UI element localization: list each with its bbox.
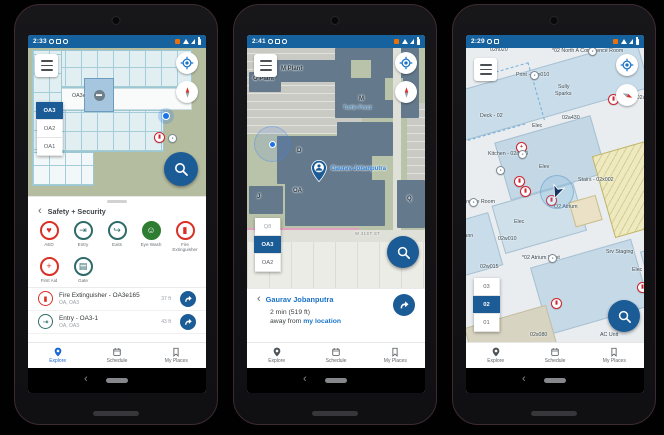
category-label: Entry [66,242,100,247]
status-right-icons [613,39,639,45]
result-icon: ▮ [38,291,53,306]
indoor-map-view[interactable]: ▬ OA3e ▮● OA3OA2OA1 [28,48,206,196]
signal-icon [191,39,195,44]
status-right-icons [394,39,420,45]
away-text: away from my location [270,318,415,325]
poi-marker[interactable]: ● [469,198,478,207]
category-icon: ↪ [108,221,127,240]
status-right-icons [175,39,201,45]
android-back-button[interactable]: ‹ [522,374,526,385]
bottom-navigation: Explore Schedule My Places [466,342,644,368]
floor-option[interactable]: OA2 [255,254,280,272]
poi-marker[interactable]: ● [168,134,177,143]
clock-icon [487,39,492,44]
menu-button[interactable] [474,58,497,81]
notification-icon [175,39,180,44]
bottom-sheet: ‹ Gaurav Jobanputra 2 min (519 ft) away … [247,288,425,342]
phone-3: 2:29 [452,4,656,425]
category-label: AED [32,242,66,247]
tab-explore[interactable]: Explore [28,347,87,364]
category-label: Eye Wash [134,242,168,247]
result-row[interactable]: ▮ Fire Extinguisher - OA3e165 OA, OA3 37… [28,288,206,311]
category-item[interactable]: ☺ Eye Wash [134,221,168,253]
compass-button[interactable] [616,84,638,106]
battery-icon [198,39,202,45]
android-nav-bar: ‹ [28,368,206,393]
category-label: Exits [100,242,134,247]
message-icon [275,39,280,44]
status-bar: 2:29 [466,35,644,48]
tab-my-places[interactable]: My Places [366,347,425,364]
front-camera [331,16,340,25]
category-item[interactable]: ▤ Gate [66,257,100,283]
result-subtitle: OA, OA3 [59,300,155,306]
poi-marker[interactable]: ▮ [637,282,644,293]
person-pin[interactable] [311,160,327,182]
battery-icon [636,39,640,45]
poi-marker[interactable]: ● [518,150,527,159]
floor-option[interactable]: OA1 [37,138,62,156]
bottom-sheet: ‹ Safety + Security ♥ AED ⇥ Entry [28,196,206,342]
clock-icon [268,39,273,44]
tab-schedule[interactable]: Schedule [525,347,584,364]
locate-button[interactable] [176,52,198,74]
poi-marker[interactable]: ▮ [551,298,562,309]
android-back-button[interactable]: ‹ [303,374,307,385]
map-label: Turtle Pond [343,106,371,112]
message-icon [56,39,61,44]
speaker-slot [531,411,577,416]
composite-screenshot: 2:33 ▬ OA3e [0,0,664,435]
tab-explore[interactable]: Explore [247,347,306,364]
current-location-dot [269,141,276,148]
category-item[interactable]: ▮ Fire Extinguisher [168,221,202,253]
category-label: Gate [66,278,100,283]
notification-icon [394,39,399,44]
floor-option[interactable]: OA3 [254,236,281,254]
speaker-slot [93,411,139,416]
directions-button[interactable] [393,294,415,316]
message-icon [494,39,499,44]
locate-button[interactable] [395,52,417,74]
result-title: Entry - OA3-1 [59,315,155,322]
result-distance: 43 ft [161,319,171,325]
wifi-icon [402,39,408,44]
phone-1-screen: 2:33 ▬ OA3e [28,35,206,393]
locate-button[interactable] [616,54,638,76]
tab-explore[interactable]: Explore [466,347,525,364]
poi-marker[interactable]: ● [530,71,539,80]
bottom-navigation: Explore Schedule My Places [28,342,206,368]
current-location-heading [540,175,574,209]
map-label: M Plant [281,66,302,72]
sheet-title: Safety + Security [48,207,106,216]
phone-1: 2:33 ▬ OA3e [14,4,218,425]
floor-selector: OA3OA2OA1 [37,102,63,156]
battery-icon [417,39,421,45]
result-icon: ⇥ [38,314,53,329]
menu-button[interactable] [254,54,277,77]
notification-icon [613,39,618,44]
floor-selector: 030201 [474,278,500,332]
map-label: Q [407,196,412,202]
category-icon: ▤ [74,257,93,276]
map-label: M [359,96,364,102]
tab-my-places[interactable]: My Places [585,347,644,364]
category-icon: + [40,257,59,276]
bottom-navigation: Explore Schedule My Places [247,342,425,368]
tab-schedule[interactable]: Schedule [87,347,146,364]
result-subtitle: OA, OA3 [59,323,155,329]
result-distance: 37 ft [161,296,171,302]
result-list: ▮ Fire Extinguisher - OA3e165 OA, OA3 37… [28,287,206,334]
category-icon: ♥ [40,221,59,240]
campus-map-view[interactable]: M PlantO PlantMTurtle PondDOAQJW 41ST ST… [247,48,425,288]
android-home-pill[interactable] [325,378,347,383]
status-time: 2:33 [33,38,47,45]
speaker-slot [312,411,358,416]
directions-button[interactable] [180,314,196,330]
tab-my-places[interactable]: My Places [147,347,206,364]
status-time: 2:41 [252,38,266,45]
poi-marker[interactable]: ● [548,254,557,263]
floor-option[interactable]: 02 [473,296,500,314]
category-item[interactable]: ⇥ Entry [66,221,100,253]
category-label: First Aid [32,278,66,283]
poi-marker[interactable]: ▮ [520,186,531,197]
android-nav-bar: ‹ [466,368,644,393]
poi-marker[interactable]: ● [588,48,597,56]
map-label: W 41ST ST [355,232,380,236]
map-label: OA [293,188,302,194]
phone-2-screen: 2:41 [247,35,425,393]
compass-button[interactable] [395,81,417,103]
android-home-pill[interactable] [544,378,566,383]
poi-marker[interactable]: ● [496,166,505,175]
front-camera [550,16,559,25]
search-fab[interactable] [164,152,198,186]
android-nav-bar: ‹ [247,368,425,393]
signal-icon [410,39,414,44]
directions-button[interactable] [180,291,196,307]
result-row[interactable]: ⇥ Entry - OA3-1 OA, OA3 43 ft [28,311,206,334]
floor-selector: Q8OA3OA2 [255,218,281,272]
category-icon: ☺ [142,221,161,240]
floor-option[interactable]: OA2 [37,120,62,138]
category-item[interactable]: ♥ AED [32,221,66,253]
category-grid: ♥ AED ⇥ Entry ↪ Exits [28,218,206,287]
android-back-button[interactable]: ‹ [84,374,88,385]
wifi-icon [621,39,627,44]
map-label: D [297,148,301,154]
phone-3-screen: 2:29 [466,35,644,393]
category-item[interactable]: ↪ Exits [100,221,134,253]
category-item[interactable]: + First Aid [32,257,66,283]
result-title: Fire Extinguisher - OA3e165 [59,292,155,299]
floor-option[interactable]: 03 [474,278,499,296]
sheet-drag-handle[interactable] [107,200,127,203]
search-fab[interactable] [387,236,419,268]
clock-icon [49,39,54,44]
wifi-icon [183,39,189,44]
menu-button[interactable] [35,54,58,77]
browser-icon [282,39,287,44]
current-location-dot [158,108,174,124]
indoor-map-view[interactable]: 02n020*02 North A Conference RoomPrint -… [466,48,644,342]
map-label: J [257,194,260,200]
status-time: 2:29 [471,38,485,45]
back-button[interactable]: ‹ [38,206,42,217]
back-button[interactable]: ‹ [257,294,261,305]
front-camera [112,16,121,25]
floor-option[interactable]: OA3 [36,102,63,120]
status-bar: 2:41 [247,35,425,48]
my-location-link[interactable]: my location [303,318,341,325]
location-accuracy-circle [254,126,290,162]
signal-icon [629,39,633,44]
status-bar: 2:33 [28,35,206,48]
search-fab[interactable] [608,300,640,332]
person-pin-label[interactable]: Gaurav Jobanputra [331,166,386,172]
compass-button[interactable] [176,81,198,103]
poi-marker[interactable]: ▮ [154,132,165,143]
category-label: Fire Extinguisher [168,242,202,253]
category-icon: ⇥ [74,221,93,240]
browser-icon [63,39,68,44]
android-home-pill[interactable] [106,378,128,383]
floor-option[interactable]: Q8 [255,218,280,236]
sheet-title[interactable]: Gaurav Jobanputra [266,295,334,304]
floor-option[interactable]: 01 [474,314,499,332]
category-icon: ▮ [176,221,195,240]
tab-schedule[interactable]: Schedule [306,347,365,364]
phone-2: 2:41 [233,4,437,425]
